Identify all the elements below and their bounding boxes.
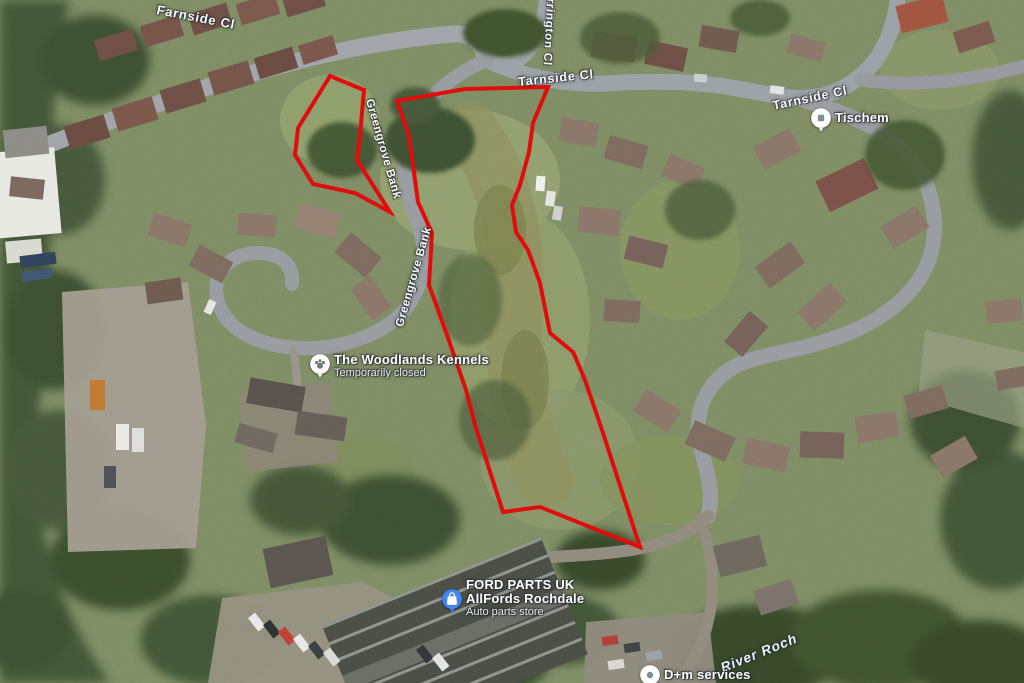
poi-name: D+m services [664,668,751,682]
place-pin-icon [638,662,662,683]
poi-name-line1: FORD PARTS UK [466,578,584,592]
poi-name-line2: AllFords Rochdale [466,592,584,606]
poi-name: The Woodlands Kennels [334,353,489,367]
poi-ford-parts[interactable]: FORD PARTS UK AllFords Rochdale Auto par… [440,586,584,619]
poi-tischem[interactable]: Tischem [809,105,889,133]
paw-pin-icon [308,351,332,379]
map-canvas[interactable]: Farnside Cl Harrington Cl Tarnside Cl Ta… [0,0,1024,683]
poi-woodlands-kennels[interactable]: The Woodlands Kennels Temporarily closed [308,351,489,380]
poi-category: Auto parts store [466,606,584,619]
poi-status: Temporarily closed [334,367,489,380]
place-pin-icon [809,105,833,133]
shopping-pin-icon [440,586,464,614]
poi-name: Tischem [835,111,889,125]
poi-dm-services[interactable]: D+m services [638,662,751,683]
